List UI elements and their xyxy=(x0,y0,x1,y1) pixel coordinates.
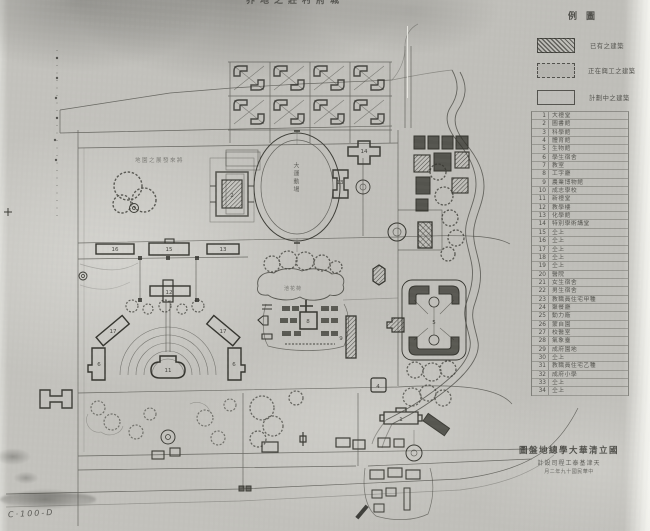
northeast-road xyxy=(405,46,411,128)
legend-row-name: 學生宿舍 xyxy=(549,154,577,161)
legend-row-name: 仝上 xyxy=(549,379,565,386)
legend-row-name: 女生宿舍 xyxy=(549,279,577,286)
label-15: 15 xyxy=(166,247,173,253)
map-title: 圖盤地總學大華清立國 xyxy=(508,444,630,456)
legend-row-number: 25 xyxy=(532,312,549,319)
legend-row-name: 工字廳 xyxy=(549,170,571,177)
legend-row: 1大禮堂 xyxy=(532,112,628,120)
legend-row-number: 4 xyxy=(532,137,549,144)
legend-row: 21女生宿舍 xyxy=(532,279,628,287)
label-17: 17 xyxy=(110,329,117,335)
legend-row-number: 8 xyxy=(532,170,549,177)
map-date-line: 月二年九十國民華中 xyxy=(508,468,630,475)
ink-smudge xyxy=(0,493,96,506)
legend-row-number: 21 xyxy=(532,279,549,286)
legend-row-name: 成府小學 xyxy=(549,371,577,378)
legend-row-name: 教職員住宅乙種 xyxy=(549,362,596,369)
label-6b: 6 xyxy=(232,362,236,368)
legend-row-name: 教室 xyxy=(549,162,565,169)
label-8: 8 xyxy=(306,319,310,325)
legend-row: 22男生宿舍 xyxy=(532,287,628,295)
legend-row-name: 新禮堂 xyxy=(549,195,571,202)
water-tower-building xyxy=(418,222,432,248)
legend-row: 4體育館 xyxy=(532,137,628,145)
athletic-field-label: 大運動場 xyxy=(291,162,300,214)
lotus-pond-label: 池花荷 xyxy=(284,285,302,292)
label-1: 1 xyxy=(399,417,403,423)
legend-row: 13化學館 xyxy=(532,212,628,220)
legend-row-name: 教職員住宅甲種 xyxy=(549,296,596,303)
legend-row-number: 18 xyxy=(532,254,549,261)
south-wall xyxy=(78,459,532,470)
legend-row-name: 仝上 xyxy=(549,387,565,394)
legend-row: 31教職員住宅乙種 xyxy=(532,362,628,370)
legend-swatch-under-construction-label: 正在興工之建築 xyxy=(588,66,636,75)
legend-row-number: 29 xyxy=(532,346,549,353)
legend-row-name: 聚餐廳 xyxy=(549,304,571,311)
legend-row-number: 11 xyxy=(532,195,549,202)
legend-row: 3科學館 xyxy=(532,129,628,137)
film-scratch xyxy=(407,26,408,98)
legend-title: 例圖 xyxy=(568,9,604,22)
legend-row: 7教室 xyxy=(532,162,628,170)
legend-row-number: 17 xyxy=(532,246,549,253)
legend-row-number: 3 xyxy=(532,129,549,136)
legend-row-name: 成志學校 xyxy=(549,187,577,194)
legend-row-number: 22 xyxy=(532,287,549,294)
outer-south-road xyxy=(6,408,578,494)
legend-row-name: 氣象臺 xyxy=(549,337,571,344)
legend-row-number: 24 xyxy=(532,304,549,311)
legend-row: 32成府小學 xyxy=(532,371,628,379)
legend-row-number: 20 xyxy=(532,271,549,278)
octagonal-pavilion xyxy=(373,265,385,285)
legend-row-number: 28 xyxy=(532,337,549,344)
legend-row-name: 蒙自園 xyxy=(549,321,571,328)
top-edge-caption: 界地之莊村府城 xyxy=(246,0,344,6)
legend-row: 19仝上 xyxy=(532,262,628,270)
map-designer-line: 計設司程工泰基津天 xyxy=(508,458,630,467)
legend-row: 6學生宿舍 xyxy=(532,154,628,162)
label-17b: 17 xyxy=(220,329,227,335)
cross-road-south xyxy=(78,386,512,404)
legend-row-name: 科學館 xyxy=(549,129,571,136)
legend-row-number: 23 xyxy=(532,296,549,303)
legend-row-number: 26 xyxy=(532,321,549,328)
legend-row-name: 男生宿舍 xyxy=(549,287,577,294)
legend-row-number: 27 xyxy=(532,329,549,336)
roads-layer xyxy=(6,24,578,526)
legend-row-number: 16 xyxy=(532,237,549,244)
legend-row-number: 6 xyxy=(532,154,549,161)
label-5: 5 xyxy=(432,320,436,326)
label-9: 9 xyxy=(339,336,343,342)
legend-row-number: 1 xyxy=(532,112,549,119)
legend-row-name: 農業博物館 xyxy=(549,179,584,186)
legend-row: 25動力廠 xyxy=(532,312,628,320)
label-13b: 13 xyxy=(220,247,227,253)
legend-swatch-planned xyxy=(537,90,575,105)
old-court-complex xyxy=(258,265,386,392)
label-16: 16 xyxy=(112,247,119,253)
auditorium-quarter xyxy=(79,239,245,380)
legend-row: 11新禮堂 xyxy=(532,195,628,203)
south-campus-road xyxy=(78,449,530,456)
legend-row: 34仝上 xyxy=(532,387,628,395)
legend-row-name: 生物館 xyxy=(549,145,571,152)
legend-row-number: 32 xyxy=(532,371,549,378)
legend-row-name: 仝上 xyxy=(549,237,565,244)
legend-row-name: 仝上 xyxy=(549,254,565,261)
legend-row: 26蒙自園 xyxy=(532,321,628,329)
legend-row-name: 特別學術講堂 xyxy=(549,220,590,227)
legend-row: 2圖書館 xyxy=(532,120,628,128)
legend-row-name: 圖書館 xyxy=(549,120,571,127)
legend-row-number: 30 xyxy=(532,354,549,361)
south-central-area xyxy=(250,385,451,520)
legend-row: 30仝上 xyxy=(532,354,628,362)
southwest-gardens xyxy=(40,390,251,491)
legend-row-name: 體育館 xyxy=(549,137,571,144)
building-9 xyxy=(346,316,356,358)
legend-row-number: 33 xyxy=(532,379,549,386)
legend-row: 9農業博物館 xyxy=(532,179,628,187)
legend-row: 24聚餐廳 xyxy=(532,304,628,312)
legend-table: 1大禮堂2圖書館3科學館4體育館5生物館6學生宿舍7教室8工字廳9農業博物館10… xyxy=(531,111,629,396)
legend-row-number: 10 xyxy=(532,187,549,194)
legend-row-number: 34 xyxy=(532,387,549,394)
legend-row-number: 7 xyxy=(532,162,549,169)
legend-swatch-under-construction xyxy=(537,63,575,78)
legend-row-number: 5 xyxy=(532,145,549,152)
residential-grid xyxy=(234,66,384,124)
legend-row-name: 教學樓 xyxy=(549,204,571,211)
legend-row: 20醫院 xyxy=(532,271,628,279)
lotus-pond xyxy=(257,251,343,300)
photograph-of-campus-plan: 14 13 2 16 15 13 12 17 17 6 6 11 8 9 4 5… xyxy=(0,0,650,531)
label-6: 6 xyxy=(97,362,101,368)
legend-row-number: 12 xyxy=(532,204,549,211)
east-quadrangle xyxy=(387,280,466,381)
legend-row-name: 仝上 xyxy=(549,262,565,269)
label-4: 4 xyxy=(376,384,380,390)
legend-row-name: 動力廠 xyxy=(549,312,571,319)
legend-row: 16仝上 xyxy=(532,237,628,245)
legend-swatch-existing-label: 已有之建築 xyxy=(590,41,624,50)
legend-row: 23教職員住宅甲種 xyxy=(532,296,628,304)
north-boundary-road xyxy=(60,80,392,110)
legend-row-name: 醫院 xyxy=(549,271,565,278)
legend-row: 27校醫室 xyxy=(532,329,628,337)
legend-row: 17仝上 xyxy=(532,246,628,254)
legend-row-name: 校醫室 xyxy=(549,329,571,336)
legend-row-number: 2 xyxy=(532,120,549,127)
legend-row: 18仝上 xyxy=(532,254,628,262)
legend-row: 15仝上 xyxy=(532,229,628,237)
legend-row: 29成府園地 xyxy=(532,346,628,354)
northeast-cluster xyxy=(388,136,469,261)
legend-row-number: 31 xyxy=(532,362,549,369)
label-2: 2 xyxy=(230,193,234,199)
legend-row-name: 仝上 xyxy=(549,354,565,361)
legend-row-name: 仝上 xyxy=(549,229,565,236)
legend-row-name: 化學館 xyxy=(549,212,571,219)
river xyxy=(372,70,484,448)
legend-swatch-planned-label: 計劃中之建築 xyxy=(589,93,630,102)
legend-row-number: 9 xyxy=(532,179,549,186)
label-14: 14 xyxy=(361,149,368,155)
legend-row-number: 19 xyxy=(532,262,549,269)
west-area-label: 地園之展發來將 xyxy=(135,156,184,164)
legend-row: 12教學樓 xyxy=(532,204,628,212)
legend-row-number: 14 xyxy=(532,220,549,227)
legend-swatch-existing xyxy=(537,38,575,53)
legend-row-name: 成府園地 xyxy=(549,346,577,353)
label-11: 11 xyxy=(165,368,172,374)
north-road xyxy=(60,126,392,133)
legend-row-number: 13 xyxy=(532,212,549,219)
legend-row: 8工字廳 xyxy=(532,170,628,178)
legend-row-name: 大禮堂 xyxy=(549,112,571,119)
legend-row: 14特別學術講堂 xyxy=(532,220,628,228)
label-13: 13 xyxy=(337,180,344,186)
legend-row-number: 15 xyxy=(532,229,549,236)
legend-row: 33仝上 xyxy=(532,379,628,387)
legend-row: 28氣象臺 xyxy=(532,337,628,345)
legend-row: 10成志學校 xyxy=(532,187,628,195)
h-shaped-building xyxy=(40,390,72,408)
legend-row: 5生物館 xyxy=(532,145,628,153)
label-12: 12 xyxy=(166,290,173,296)
legend-row-name: 仝上 xyxy=(549,246,565,253)
gymnasium-compound xyxy=(210,150,258,222)
